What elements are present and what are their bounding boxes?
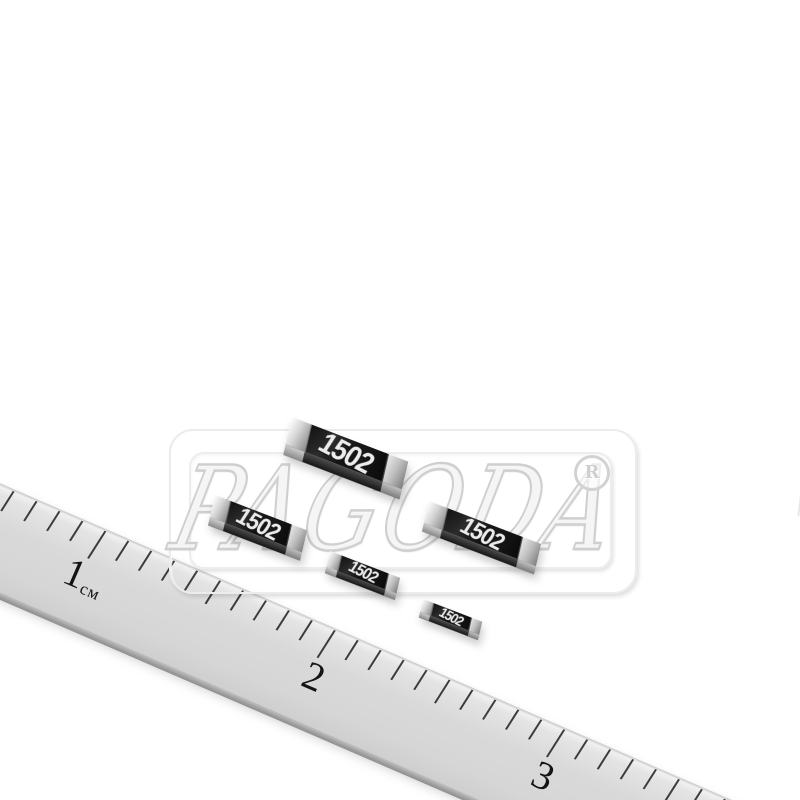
- ruler-tick: [367, 650, 381, 670]
- ruler-tick: [482, 699, 496, 719]
- ruler-tick: [574, 739, 588, 759]
- ruler-tick: [528, 719, 542, 739]
- edge-watermark-fragment: [792, 489, 800, 517]
- ruler-tick: [505, 709, 519, 729]
- ruler-tick: [115, 541, 129, 561]
- ruler-tick: [663, 779, 679, 800]
- ruler-tick: [643, 769, 657, 789]
- ruler-tick: [434, 680, 450, 704]
- ruler-tick: [253, 600, 267, 620]
- ruler-tick: [689, 789, 703, 800]
- ruler-tick: [413, 670, 427, 690]
- ruler-tick: [597, 749, 611, 769]
- product-photo: 1см23 PAGODA R 15021502150215021502: [0, 0, 800, 800]
- ruler-tick: [390, 660, 404, 680]
- ruler-tick: [459, 690, 473, 710]
- ruler-tick: [0, 491, 14, 511]
- ruler-cm-number: 2: [296, 652, 332, 701]
- ruler-tick: [23, 501, 37, 521]
- ruler-tick: [69, 521, 83, 541]
- ruler-cm-label: 3: [526, 754, 560, 799]
- registered-trademark-letter: R: [585, 462, 600, 483]
- ruler-tick: [299, 620, 313, 640]
- ruler-cm-label: 2: [297, 654, 331, 699]
- ruler-cm-label: 1см: [58, 551, 111, 604]
- ruler-cm-number: 3: [525, 751, 561, 800]
- ruler-tick: [138, 551, 152, 571]
- ruler-tick: [620, 759, 634, 779]
- ruler-tick: [46, 511, 60, 531]
- ruler-tick: [344, 640, 358, 660]
- chip-resistor: 1502: [419, 599, 482, 640]
- ruler-tick: [276, 610, 290, 630]
- registered-trademark-icon: R: [574, 455, 610, 491]
